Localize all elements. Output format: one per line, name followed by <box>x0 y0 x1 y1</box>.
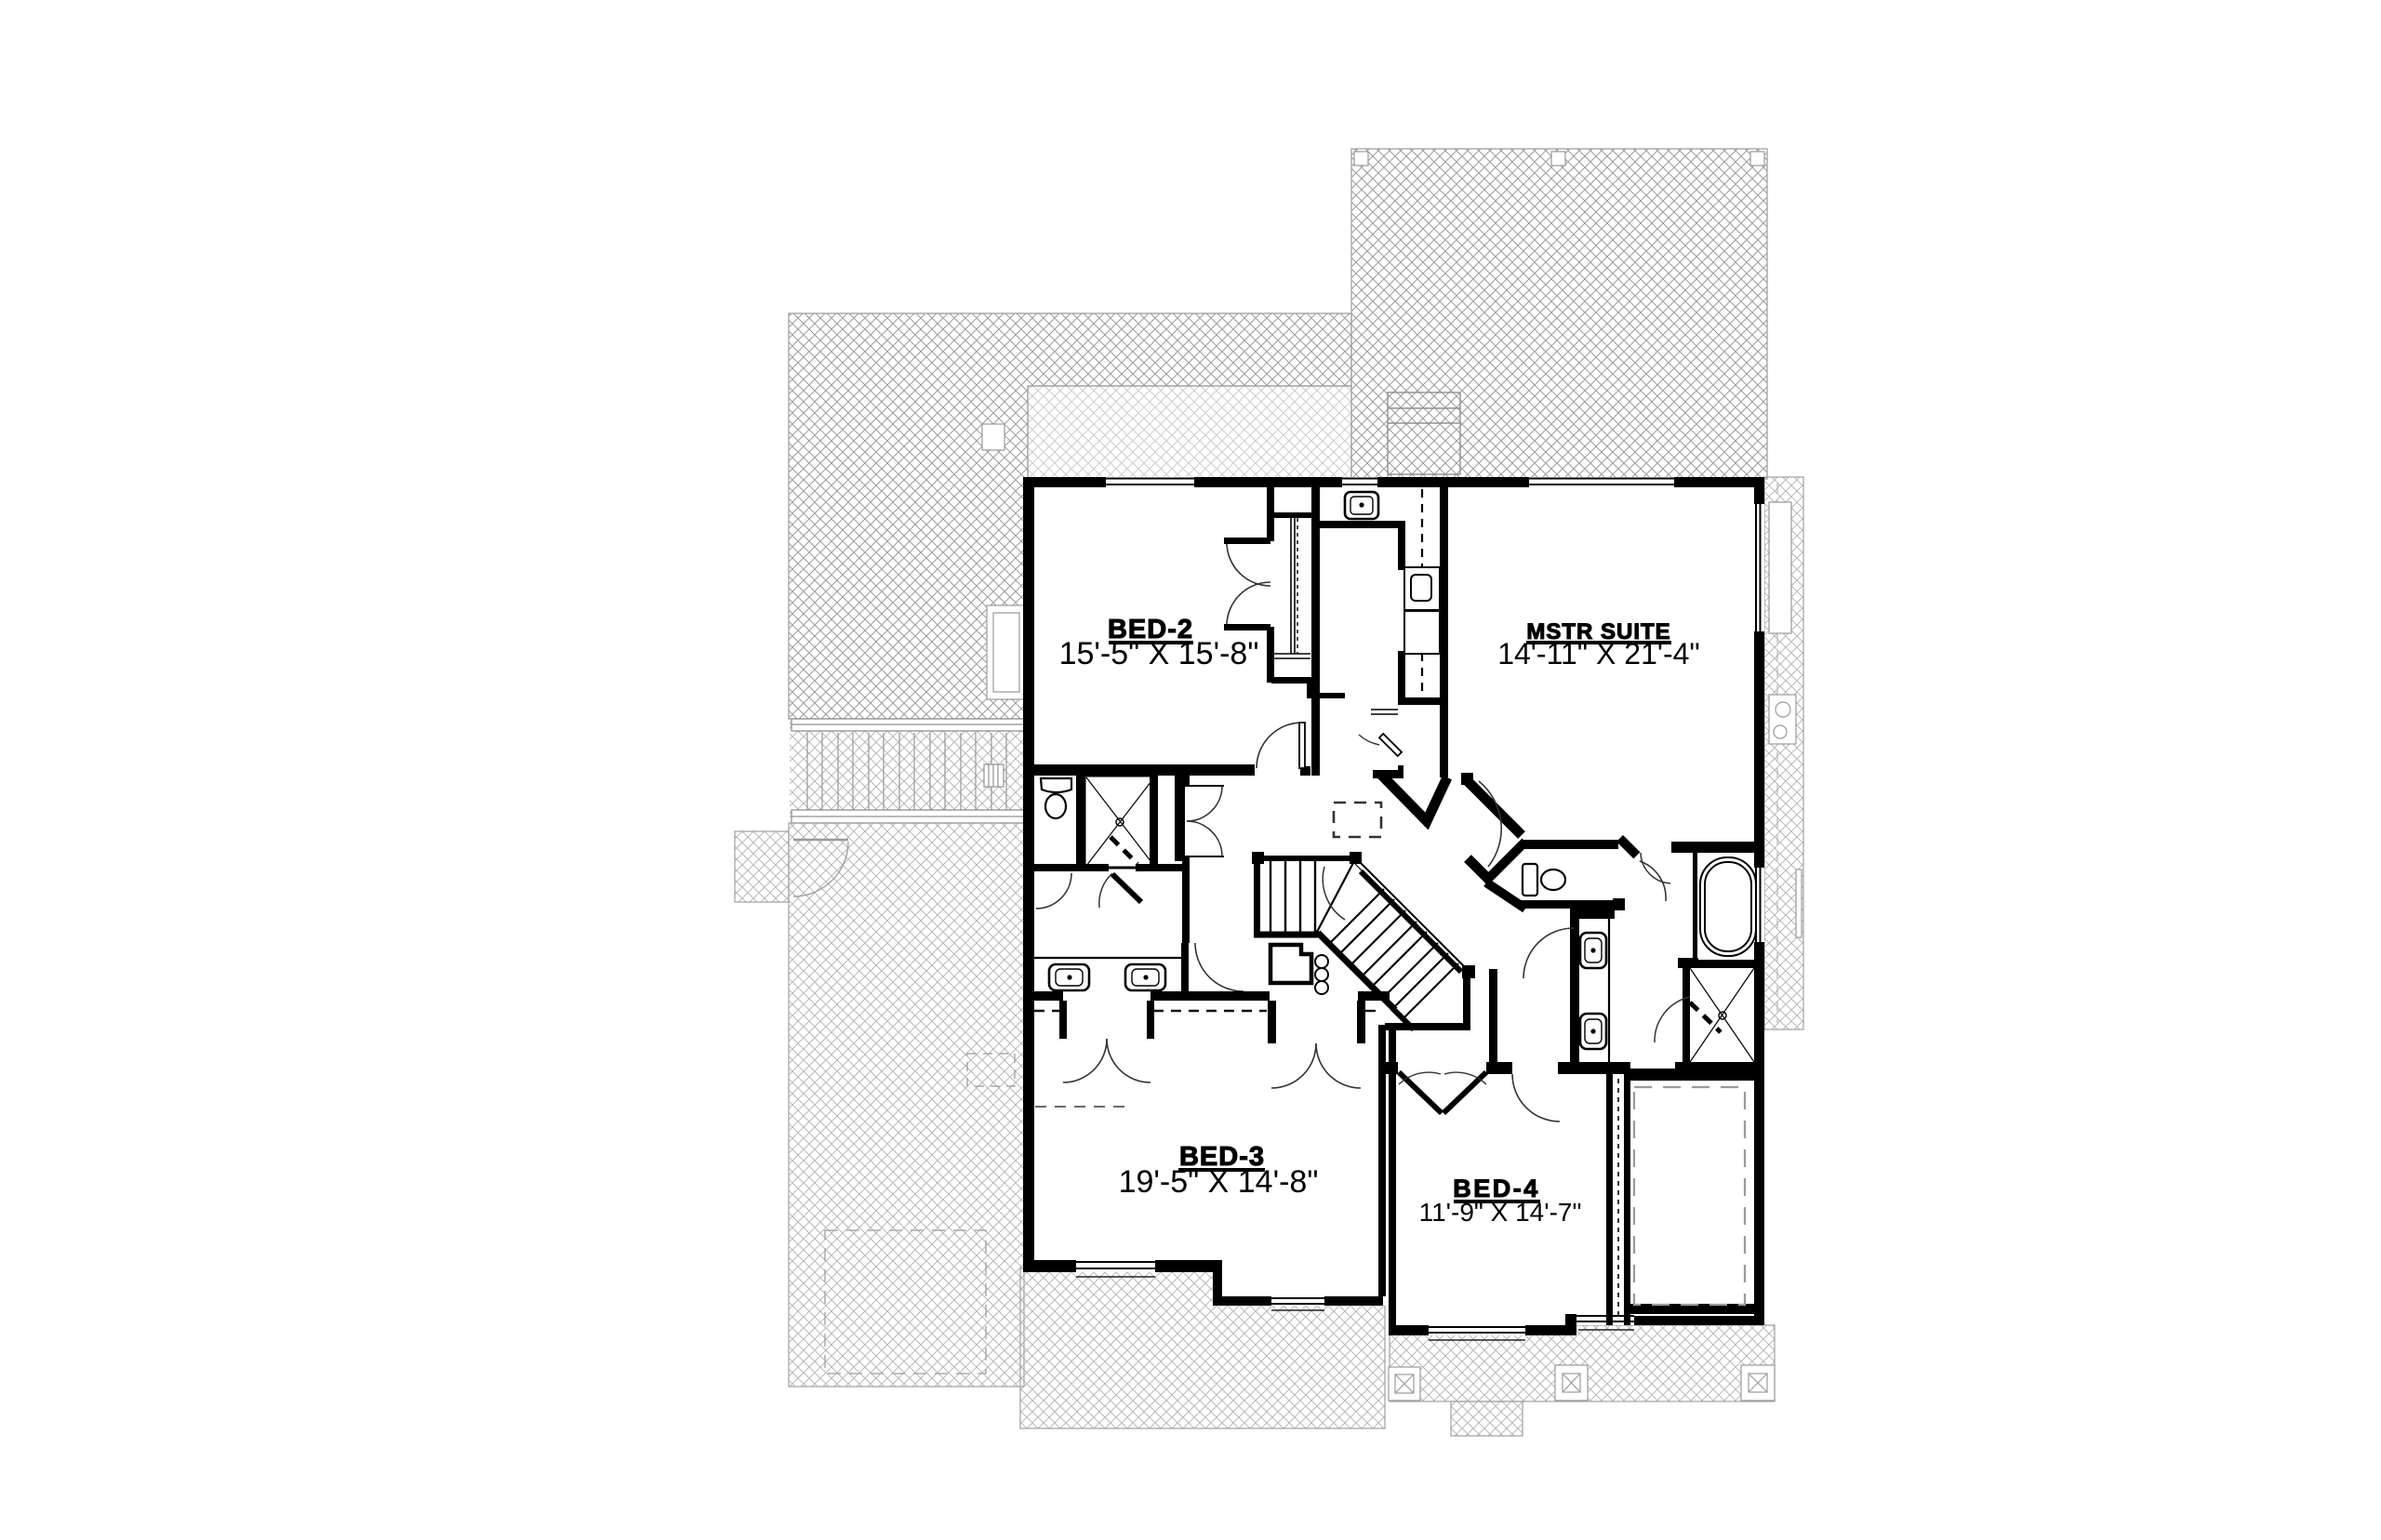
svg-text:15'-5" X 15'-8": 15'-5" X 15'-8" <box>1059 636 1259 671</box>
svg-text:19'-5" X 14'-8": 19'-5" X 14'-8" <box>1119 1164 1319 1200</box>
svg-text:11'-9" X 14'-7": 11'-9" X 14'-7" <box>1419 1198 1582 1227</box>
svg-text:14'-11" X 21'-4": 14'-11" X 21'-4" <box>1497 637 1700 670</box>
